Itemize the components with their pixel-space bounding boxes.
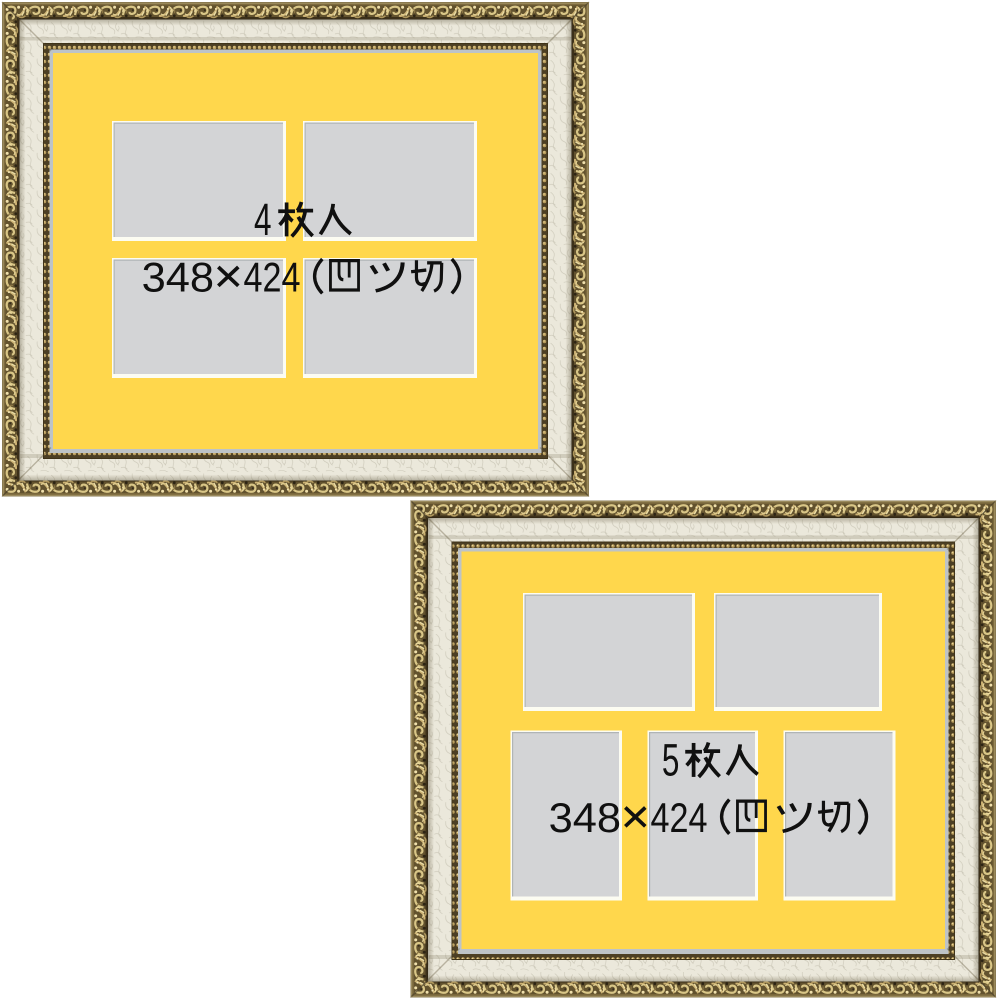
svg-text:5: 5 <box>662 734 680 785</box>
svg-text:4: 4 <box>254 194 272 245</box>
